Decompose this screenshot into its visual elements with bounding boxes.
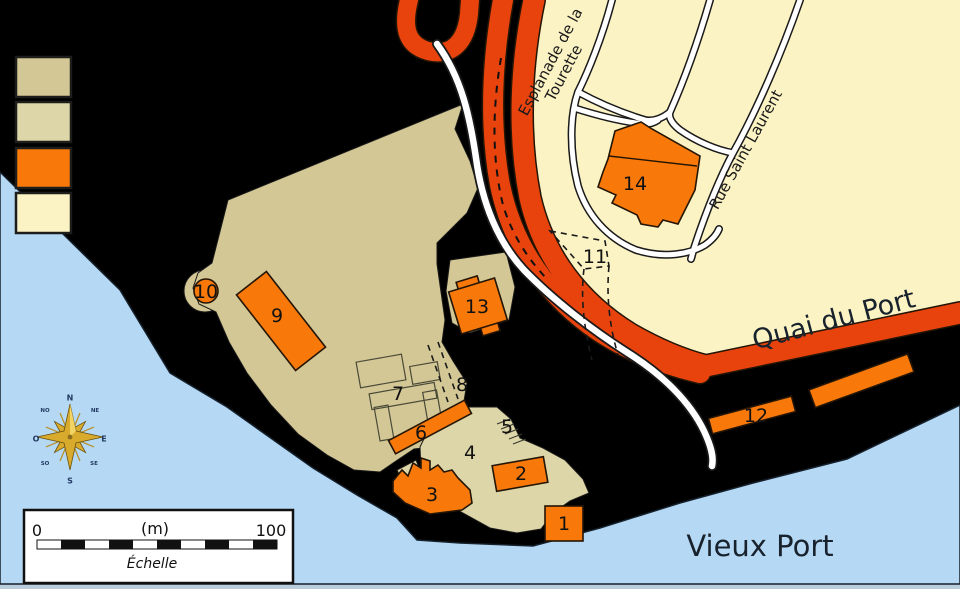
compass-o: O bbox=[33, 435, 40, 444]
marker-label-1: 1 bbox=[558, 513, 570, 535]
compass-n: N bbox=[67, 394, 74, 403]
marker-label-9: 9 bbox=[271, 305, 283, 327]
compass-e: E bbox=[101, 435, 106, 444]
scale-start: 0 bbox=[32, 521, 42, 540]
compass-no: NO bbox=[40, 408, 50, 414]
marker-label-4: 4 bbox=[464, 442, 476, 464]
marker-label-3: 3 bbox=[426, 484, 438, 506]
marker-label-10: 10 bbox=[194, 281, 218, 303]
marker-label-14: 14 bbox=[623, 173, 647, 195]
map-canvas: 1 2 3 4 5 6 7 8 9 10 11 12 13 14 Esplana… bbox=[0, 0, 960, 589]
legend-swatch-light-tan bbox=[16, 102, 71, 142]
scale-bar: 0 (m) 100 Échelle bbox=[24, 510, 293, 583]
marker-label-2: 2 bbox=[515, 463, 527, 485]
compass-s: S bbox=[67, 477, 73, 486]
marker-label-12: 12 bbox=[744, 405, 768, 427]
legend-swatch-fort-tan bbox=[16, 57, 71, 97]
vieux-port-label: Vieux Port bbox=[686, 529, 833, 563]
marker-label-13: 13 bbox=[465, 296, 489, 318]
map-page: 1 2 3 4 5 6 7 8 9 10 11 12 13 14 Esplana… bbox=[0, 0, 960, 589]
compass-ne: NE bbox=[91, 408, 100, 414]
legend-swatch-orange bbox=[16, 148, 71, 188]
marker-label-5: 5 bbox=[501, 416, 513, 438]
compass-center bbox=[68, 435, 73, 440]
scale-unit: (m) bbox=[141, 519, 169, 538]
marker-label-7: 7 bbox=[392, 383, 404, 405]
scale-segments bbox=[37, 540, 277, 549]
marker-label-6: 6 bbox=[415, 422, 427, 444]
compass-se: SE bbox=[90, 461, 98, 467]
scale-end: 100 bbox=[256, 521, 287, 540]
marker-label-8: 8 bbox=[456, 374, 468, 396]
marker-label-11: 11 bbox=[583, 246, 607, 268]
legend-swatch-cream bbox=[16, 193, 71, 233]
compass-so: SO bbox=[41, 461, 50, 467]
scale-caption: Échelle bbox=[127, 555, 177, 572]
